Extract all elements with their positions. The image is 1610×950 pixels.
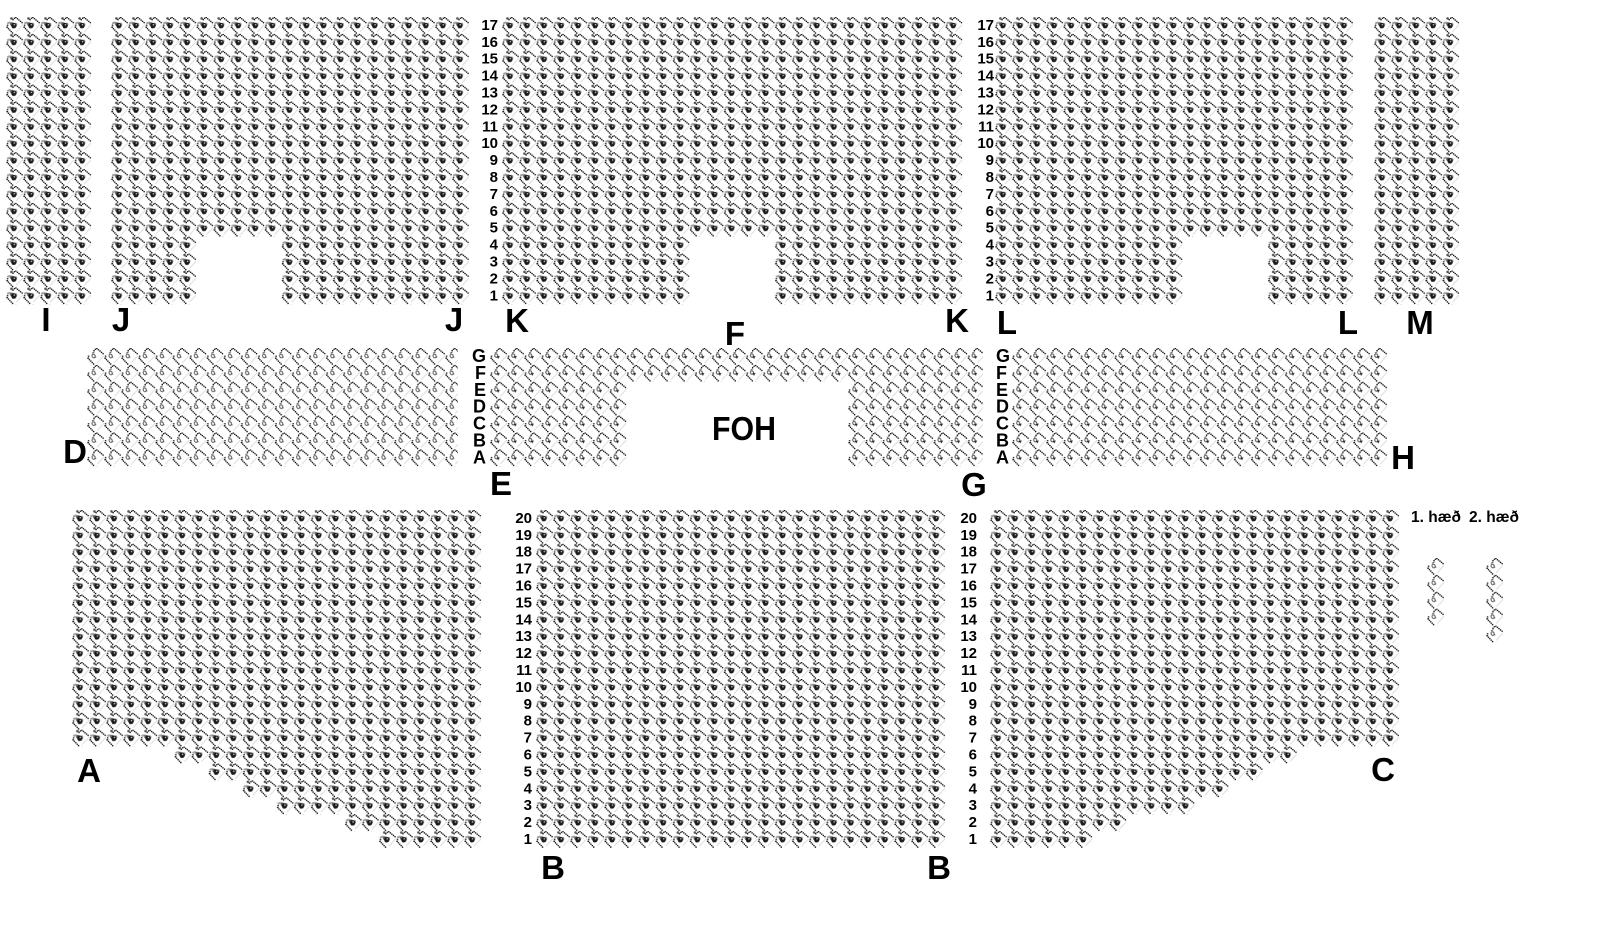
svg-text:15: 15 — [515, 594, 532, 611]
svg-text:15: 15 — [960, 594, 977, 611]
svg-text:18: 18 — [515, 544, 532, 561]
svg-text:3: 3 — [490, 254, 498, 271]
svg-text:FOH: FOH — [712, 410, 776, 447]
svg-text:10: 10 — [960, 679, 977, 696]
svg-text:4: 4 — [490, 237, 499, 254]
svg-text:A: A — [996, 447, 1009, 467]
svg-text:2: 2 — [524, 814, 532, 831]
svg-text:1: 1 — [524, 831, 532, 848]
svg-text:5: 5 — [490, 220, 498, 237]
svg-text:10: 10 — [481, 135, 498, 152]
svg-text:10: 10 — [977, 135, 994, 152]
svg-text:1: 1 — [490, 287, 498, 304]
svg-text:2: 2 — [969, 814, 977, 831]
svg-text:4: 4 — [524, 780, 533, 797]
svg-text:2: 2 — [986, 270, 994, 287]
svg-text:16: 16 — [515, 578, 532, 595]
svg-text:11: 11 — [482, 118, 498, 135]
svg-text:3: 3 — [969, 797, 977, 814]
svg-text:9: 9 — [490, 152, 498, 169]
svg-text:14: 14 — [977, 68, 994, 85]
svg-text:16: 16 — [481, 34, 498, 51]
svg-text:9: 9 — [524, 696, 532, 713]
svg-text:I: I — [41, 301, 50, 338]
svg-text:B: B — [541, 849, 565, 886]
svg-text:B: B — [927, 849, 951, 886]
svg-text:A: A — [473, 447, 486, 467]
svg-text:13: 13 — [515, 628, 532, 645]
svg-text:12: 12 — [960, 645, 977, 662]
svg-text:L: L — [1338, 304, 1358, 341]
svg-text:E: E — [490, 465, 512, 502]
svg-text:L: L — [997, 304, 1017, 341]
svg-text:13: 13 — [960, 628, 977, 645]
svg-text:17: 17 — [515, 561, 532, 578]
svg-text:A: A — [77, 752, 101, 789]
svg-text:19: 19 — [960, 527, 977, 544]
svg-text:11: 11 — [961, 662, 977, 679]
svg-text:3: 3 — [524, 797, 532, 814]
svg-text:4: 4 — [969, 780, 978, 797]
svg-text:5: 5 — [986, 220, 994, 237]
svg-text:7: 7 — [986, 186, 994, 203]
svg-text:1: 1 — [969, 831, 977, 848]
svg-text:7: 7 — [490, 186, 498, 203]
svg-text:20: 20 — [515, 510, 532, 527]
svg-text:16: 16 — [960, 578, 977, 595]
svg-text:J: J — [112, 301, 130, 338]
svg-text:K: K — [945, 302, 969, 339]
svg-text:18: 18 — [960, 544, 977, 561]
svg-text:6: 6 — [986, 203, 994, 220]
svg-text:F: F — [725, 315, 745, 352]
svg-text:C: C — [1371, 751, 1395, 788]
svg-text:11: 11 — [516, 662, 532, 679]
svg-text:17: 17 — [960, 561, 977, 578]
svg-text:2: 2 — [490, 270, 498, 287]
svg-text:1. hæð: 1. hæð — [1411, 509, 1461, 526]
svg-text:1: 1 — [986, 287, 994, 304]
svg-text:6: 6 — [524, 747, 532, 764]
svg-text:15: 15 — [481, 51, 498, 68]
svg-text:M: M — [1406, 304, 1434, 341]
svg-text:7: 7 — [524, 730, 532, 747]
svg-text:17: 17 — [977, 17, 994, 34]
svg-text:6: 6 — [490, 203, 498, 220]
svg-text:16: 16 — [977, 34, 994, 51]
svg-text:14: 14 — [515, 611, 532, 628]
svg-text:6: 6 — [969, 747, 977, 764]
svg-text:20: 20 — [960, 510, 977, 527]
svg-text:11: 11 — [978, 118, 994, 135]
svg-text:19: 19 — [515, 527, 532, 544]
svg-text:14: 14 — [960, 611, 977, 628]
svg-text:10: 10 — [515, 679, 532, 696]
svg-text:4: 4 — [986, 237, 995, 254]
svg-text:5: 5 — [524, 763, 532, 780]
svg-text:J: J — [445, 301, 463, 338]
svg-text:8: 8 — [490, 169, 498, 186]
svg-text:17: 17 — [481, 17, 498, 34]
svg-text:15: 15 — [977, 51, 994, 68]
svg-text:9: 9 — [986, 152, 994, 169]
svg-text:9: 9 — [969, 696, 977, 713]
svg-text:D: D — [63, 433, 87, 470]
svg-text:K: K — [505, 302, 529, 339]
svg-text:12: 12 — [977, 101, 994, 118]
svg-text:5: 5 — [969, 763, 977, 780]
svg-text:G: G — [961, 466, 987, 503]
svg-text:8: 8 — [969, 713, 977, 730]
svg-text:8: 8 — [986, 169, 994, 186]
svg-text:2. hæð: 2. hæð — [1469, 509, 1519, 526]
svg-text:7: 7 — [969, 730, 977, 747]
svg-text:13: 13 — [481, 85, 498, 102]
svg-text:13: 13 — [977, 85, 994, 102]
svg-text:8: 8 — [524, 713, 532, 730]
svg-text:12: 12 — [481, 101, 498, 118]
svg-text:14: 14 — [481, 68, 498, 85]
svg-text:H: H — [1391, 439, 1415, 476]
svg-text:12: 12 — [515, 645, 532, 662]
svg-text:3: 3 — [986, 254, 994, 271]
